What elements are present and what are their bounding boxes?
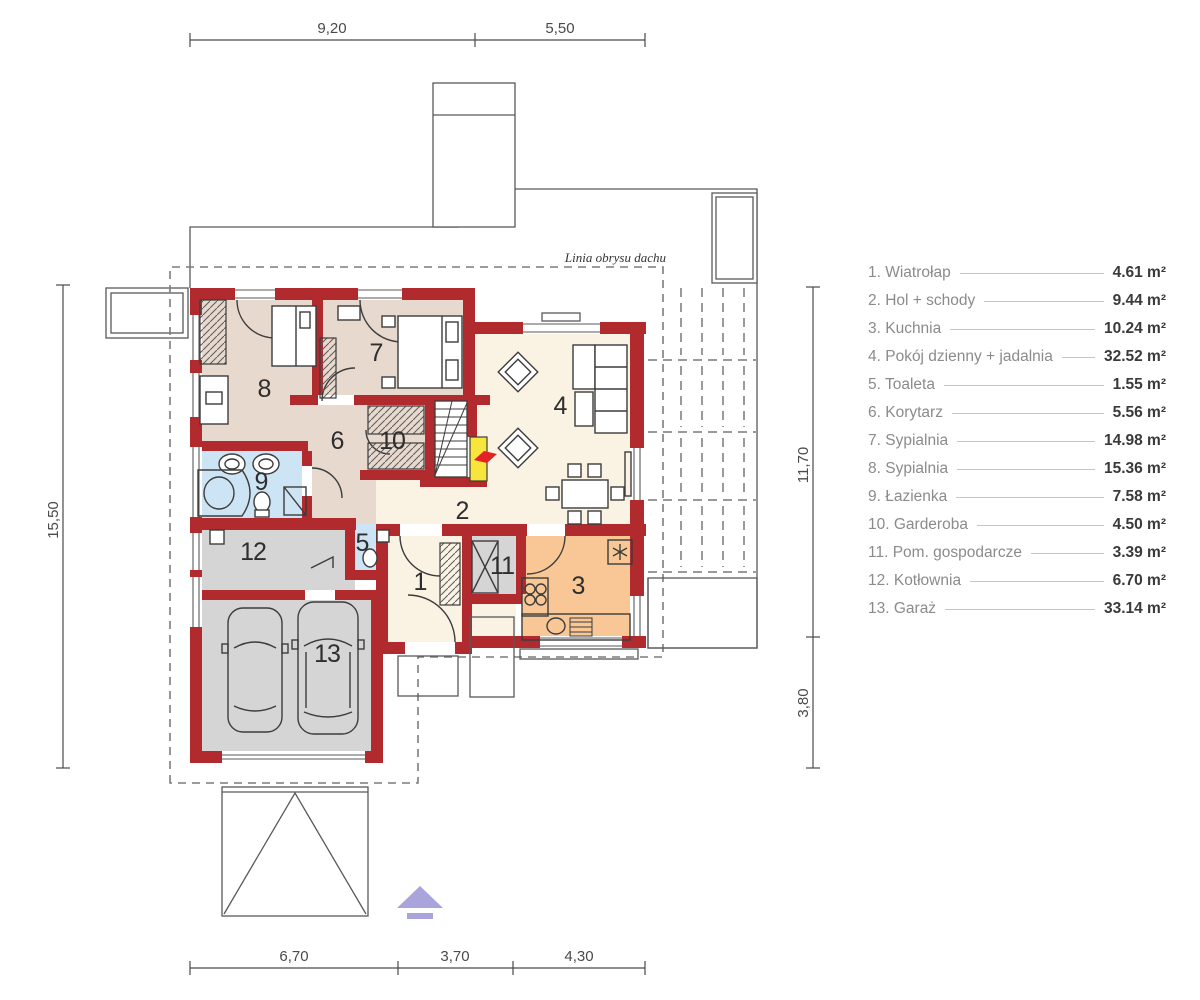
sofa-chaise bbox=[573, 345, 595, 389]
dim-bottom-2: 3,70 bbox=[440, 948, 469, 965]
wall-bathroom-top bbox=[196, 441, 308, 451]
wardrobe-room7 bbox=[320, 338, 336, 398]
room-label-8: 8 bbox=[258, 375, 271, 403]
legend-label: 3. Kuchnia bbox=[868, 320, 941, 338]
dim-bottom-3: 4,30 bbox=[564, 948, 593, 965]
legend-label: 5. Toaleta bbox=[868, 376, 935, 394]
kitchen-window-sill bbox=[520, 649, 638, 659]
legend-label: 2. Hol + schody bbox=[868, 292, 975, 310]
room-label-10: 10 bbox=[379, 427, 405, 455]
room-legend: 1. Wiatrołap 4.61 m² 2. Hol + schody 9.4… bbox=[868, 259, 1166, 623]
legend-row: 10. Garderoba 4.50 m² bbox=[868, 511, 1166, 539]
wall-garage-top bbox=[196, 590, 377, 600]
room-label-9: 9 bbox=[255, 468, 268, 496]
room-label-3: 3 bbox=[572, 572, 585, 600]
room-label-2: 2 bbox=[456, 497, 469, 525]
boiler-icon bbox=[210, 530, 224, 544]
legend-label: 6. Korytarz bbox=[868, 404, 943, 422]
legend-connector bbox=[960, 273, 1104, 274]
room-label-6: 6 bbox=[331, 427, 344, 455]
room-label-12: 12 bbox=[240, 538, 266, 566]
legend-connector bbox=[957, 441, 1095, 442]
desk-room8 bbox=[200, 376, 228, 424]
room-label-4: 4 bbox=[554, 392, 568, 420]
wall-wardrobe-bottom bbox=[360, 470, 425, 480]
legend-connector bbox=[944, 385, 1104, 386]
legend-label: 12. Kotłownia bbox=[868, 572, 961, 590]
legend-area: 15.36 m² bbox=[1104, 460, 1166, 478]
legend-area: 3.39 m² bbox=[1113, 544, 1166, 562]
legend-row: 4. Pokój dzienny + jadalnia 32.52 m² bbox=[868, 343, 1166, 371]
terrace-deck bbox=[648, 288, 757, 572]
pillow-room8 bbox=[300, 312, 310, 328]
legend-row: 8. Sypialnia 15.36 m² bbox=[868, 455, 1166, 483]
legend-connector bbox=[957, 469, 1095, 470]
wall-right-upper bbox=[630, 334, 644, 448]
legend-label: 11. Pom. gospodarcze bbox=[868, 544, 1022, 562]
legend-row: 1. Wiatrołap 4.61 m² bbox=[868, 259, 1166, 287]
dim-bottom-1: 6,70 bbox=[279, 948, 308, 965]
legend-label: 8. Sypialnia bbox=[868, 460, 948, 478]
right-roof-window-inner bbox=[716, 197, 753, 279]
dim-top bbox=[190, 33, 645, 47]
legend-area: 32.52 m² bbox=[1104, 348, 1166, 366]
dim-right-upper: 11,70 bbox=[795, 447, 812, 483]
legend-connector bbox=[952, 413, 1104, 414]
dining-table bbox=[562, 480, 608, 508]
room-label-5: 5 bbox=[356, 529, 369, 557]
wall-vestibule-left bbox=[376, 524, 388, 654]
legend-connector bbox=[970, 581, 1104, 582]
pillow2-room7 bbox=[446, 360, 458, 380]
terrace-step bbox=[648, 578, 757, 648]
legend-connector bbox=[956, 497, 1103, 498]
wall-bathroom-bottom bbox=[190, 518, 356, 530]
legend-area: 14.98 m² bbox=[1104, 432, 1166, 450]
entrance-step bbox=[398, 656, 458, 696]
nightstand1-room7 bbox=[382, 316, 395, 327]
pillow1-room7 bbox=[446, 322, 458, 342]
wall-top-bedrooms bbox=[190, 288, 475, 300]
deck-boards-vertical bbox=[681, 288, 744, 567]
legend-area: 9.44 m² bbox=[1113, 292, 1166, 310]
wall-toilet-left bbox=[345, 524, 355, 575]
legend-connector bbox=[1031, 553, 1104, 554]
legend-area: 4.61 m² bbox=[1113, 264, 1166, 282]
legend-row: 2. Hol + schody 9.44 m² bbox=[868, 287, 1166, 315]
floor-plan-page: 1 2 3 4 5 6 7 8 9 10 11 12 13 Linia obry… bbox=[0, 0, 1200, 1000]
room-label-7: 7 bbox=[370, 339, 383, 367]
legend-area: 1.55 m² bbox=[1113, 376, 1166, 394]
legend-connector bbox=[977, 525, 1104, 526]
wardrobe-room8 bbox=[200, 300, 226, 364]
legend-connector bbox=[950, 329, 1095, 330]
legend-connector bbox=[984, 301, 1103, 302]
legend-area: 4.50 m² bbox=[1113, 516, 1166, 534]
legend-connector bbox=[1062, 357, 1095, 358]
desk-room7 bbox=[338, 306, 360, 320]
closet-vestibule bbox=[440, 543, 460, 605]
dim-top-1: 9,20 bbox=[317, 20, 346, 37]
entrance-arrow-icon bbox=[397, 886, 443, 919]
sink1-icon bbox=[219, 454, 245, 474]
legend-connector bbox=[945, 609, 1095, 610]
room-label-1: 1 bbox=[414, 568, 427, 596]
wall-utility-bottom bbox=[462, 594, 522, 604]
legend-row: 12. Kotłownia 6.70 m² bbox=[868, 567, 1166, 595]
wall-step-vertical bbox=[463, 288, 475, 401]
legend-row: 5. Toaleta 1.55 m² bbox=[868, 371, 1166, 399]
dim-left-1: 15,50 bbox=[45, 501, 62, 539]
legend-area: 6.70 m² bbox=[1113, 572, 1166, 590]
wall-between-11-3 bbox=[516, 536, 526, 594]
dim-top-2: 5,50 bbox=[545, 20, 574, 37]
legend-row: 11. Pom. gospodarcze 3.39 m² bbox=[868, 539, 1166, 567]
legend-row: 13. Garaż 33.14 m² bbox=[868, 595, 1166, 623]
coffee-table bbox=[575, 392, 593, 426]
legend-label: 10. Garderoba bbox=[868, 516, 968, 534]
legend-row: 7. Sypialnia 14.98 m² bbox=[868, 427, 1166, 455]
legend-row: 3. Kuchnia 10.24 m² bbox=[868, 315, 1166, 343]
legend-label: 7. Sypialnia bbox=[868, 432, 948, 450]
wall-stairs-left bbox=[425, 395, 435, 487]
nightstand2-room7 bbox=[382, 377, 395, 388]
sink-toilet-icon bbox=[377, 530, 389, 542]
roof-outline-label: Linia obrysu dachu bbox=[564, 250, 667, 265]
legend-label: 13. Garaż bbox=[868, 600, 936, 618]
room-label-11: 11 bbox=[490, 552, 514, 580]
legend-label: 1. Wiatrołap bbox=[868, 264, 951, 282]
driveway-canopy bbox=[222, 787, 368, 916]
legend-label: 9. Łazienka bbox=[868, 488, 947, 506]
wall-stairs-right bbox=[467, 401, 477, 437]
dim-right-lower: 3,80 bbox=[795, 688, 812, 717]
legend-area: 33.14 m² bbox=[1104, 600, 1166, 618]
living-window-sill bbox=[542, 313, 580, 321]
wall-toilet-bottom bbox=[345, 570, 388, 580]
legend-area: 7.58 m² bbox=[1113, 488, 1166, 506]
legend-label: 4. Pokój dzienny + jadalnia bbox=[868, 348, 1053, 366]
legend-row: 6. Korytarz 5.56 m² bbox=[868, 399, 1166, 427]
legend-row: 9. Łazienka 7.58 m² bbox=[868, 483, 1166, 511]
legend-area: 5.56 m² bbox=[1113, 404, 1166, 422]
left-bay-window-inner bbox=[111, 293, 183, 333]
chimney bbox=[433, 83, 515, 227]
room-label-13: 13 bbox=[314, 640, 340, 668]
legend-area: 10.24 m² bbox=[1104, 320, 1166, 338]
canopy-gable bbox=[224, 793, 366, 914]
